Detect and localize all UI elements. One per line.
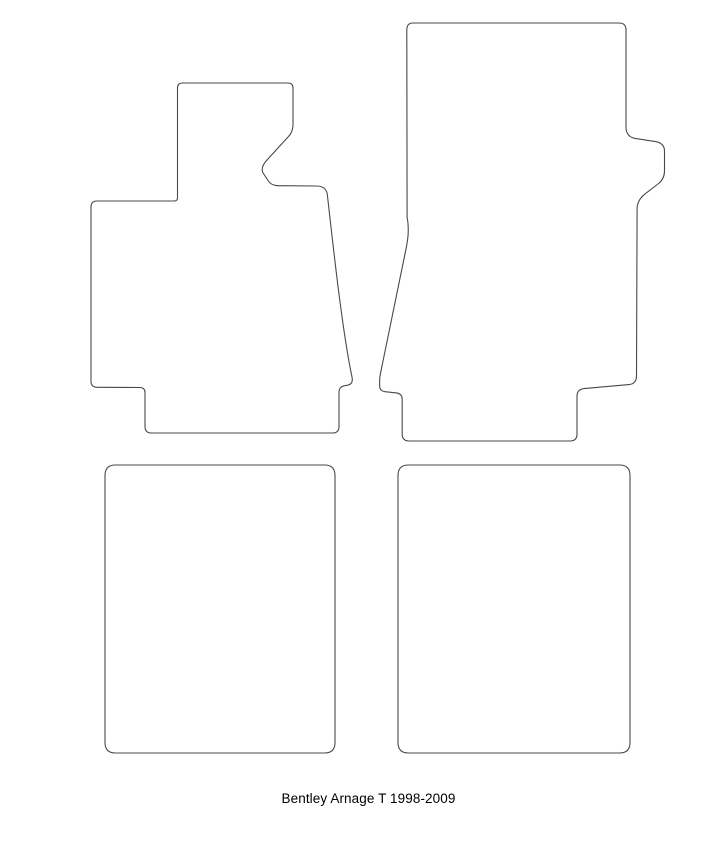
front-left-driver-mat-outline (91, 83, 352, 433)
mat-template-diagram: Bentley Arnage T 1998-2009 (0, 0, 723, 853)
caption: Bentley Arnage T 1998-2009 (7, 792, 723, 807)
rear-left-mat-outline (105, 465, 335, 753)
front-right-passenger-mat-outline (380, 23, 665, 441)
mat-outlines-svg (0, 0, 723, 853)
rear-right-mat-outline (398, 465, 630, 753)
